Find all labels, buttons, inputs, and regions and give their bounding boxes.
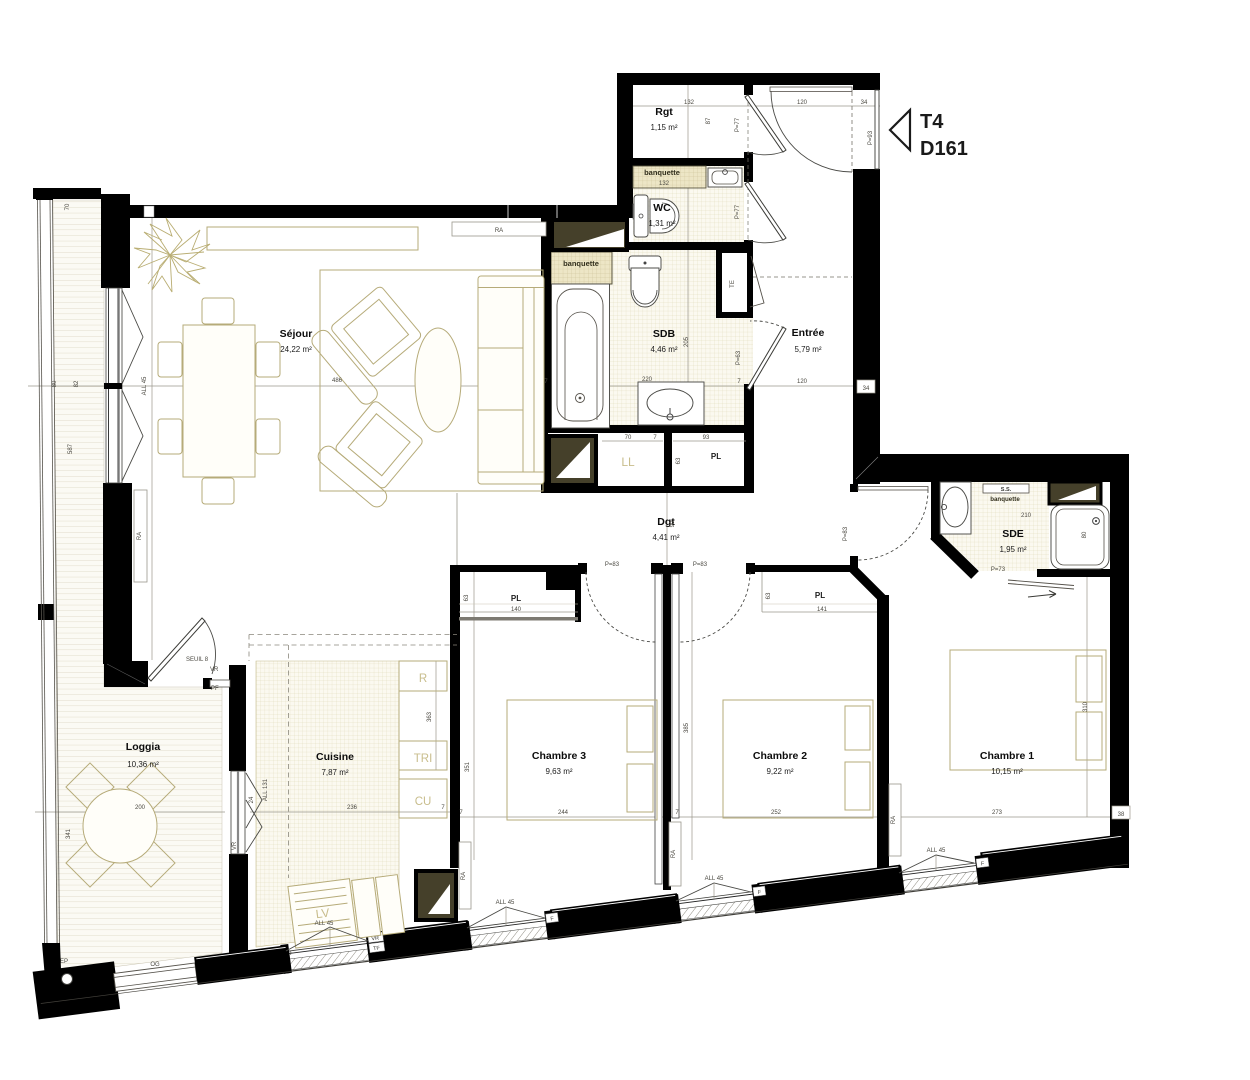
- svg-text:banquette: banquette: [644, 168, 680, 177]
- svg-text:252: 252: [771, 810, 782, 816]
- svg-text:P=73: P=73: [991, 567, 1006, 573]
- svg-text:ALL 45: ALL 45: [496, 900, 515, 906]
- svg-text:205: 205: [684, 336, 690, 347]
- svg-text:TRI: TRI: [414, 753, 433, 765]
- svg-text:132: 132: [684, 100, 695, 106]
- svg-text:ALL 45: ALL 45: [927, 848, 946, 854]
- svg-text:EP: EP: [60, 959, 68, 965]
- svg-text:310: 310: [1083, 701, 1089, 712]
- svg-text:63: 63: [464, 594, 470, 601]
- svg-text:486: 486: [332, 378, 343, 384]
- svg-text:PL: PL: [815, 591, 825, 600]
- svg-text:4,46 m²: 4,46 m²: [650, 345, 677, 354]
- svg-text:Chambre 3: Chambre 3: [532, 750, 586, 762]
- svg-text:SEUIL 8: SEUIL 8: [186, 657, 209, 663]
- svg-text:RA: RA: [891, 816, 897, 824]
- svg-text:120: 120: [797, 379, 808, 385]
- svg-text:132: 132: [659, 181, 670, 187]
- svg-text:82: 82: [74, 380, 80, 387]
- svg-text:24,22 m²: 24,22 m²: [280, 345, 312, 354]
- svg-text:WC: WC: [653, 202, 671, 214]
- svg-text:P=83: P=83: [843, 526, 849, 541]
- svg-text:VR: VR: [232, 841, 238, 850]
- svg-text:P=63: P=63: [736, 350, 742, 365]
- svg-text:34: 34: [863, 386, 870, 392]
- svg-text:363: 363: [427, 711, 433, 722]
- svg-text:1,31 m²: 1,31 m²: [648, 219, 675, 228]
- svg-text:341: 341: [66, 828, 72, 839]
- svg-text:F: F: [290, 951, 294, 957]
- svg-text:ALL 45: ALL 45: [315, 921, 334, 927]
- svg-text:P=77: P=77: [735, 117, 741, 132]
- svg-text:RA: RA: [461, 872, 467, 880]
- svg-text:PL: PL: [511, 594, 521, 603]
- svg-text:PF: PF: [211, 686, 219, 692]
- svg-text:90: 90: [670, 520, 676, 527]
- svg-text:P=83: P=83: [605, 562, 620, 568]
- svg-text:10,15 m²: 10,15 m²: [991, 767, 1023, 776]
- svg-text:SDE: SDE: [1002, 528, 1024, 540]
- svg-text:10,36 m²: 10,36 m²: [127, 760, 159, 769]
- svg-text:70: 70: [625, 435, 632, 441]
- svg-text:PL: PL: [711, 452, 721, 461]
- svg-text:273: 273: [992, 810, 1003, 816]
- svg-text:OG: OG: [150, 962, 160, 968]
- svg-text:244: 244: [558, 810, 569, 816]
- svg-text:Séjour: Séjour: [280, 328, 313, 340]
- svg-text:140: 140: [511, 607, 522, 613]
- svg-text:7,87 m²: 7,87 m²: [321, 768, 348, 777]
- svg-text:34: 34: [861, 100, 868, 106]
- svg-text:4,41 m²: 4,41 m²: [652, 533, 679, 542]
- svg-text:24: 24: [249, 796, 255, 803]
- svg-text:93: 93: [703, 435, 710, 441]
- svg-text:87: 87: [706, 117, 712, 124]
- svg-text:5,79 m²: 5,79 m²: [794, 345, 821, 354]
- svg-text:9,63 m²: 9,63 m²: [545, 767, 572, 776]
- svg-text:P=83: P=83: [693, 562, 708, 568]
- svg-text:P=93: P=93: [868, 130, 874, 145]
- svg-text:P=77: P=77: [735, 204, 741, 219]
- svg-text:1,95 m²: 1,95 m²: [999, 545, 1026, 554]
- svg-text:351: 351: [465, 761, 471, 772]
- svg-text:banquette: banquette: [990, 496, 1020, 503]
- svg-text:120: 120: [797, 100, 808, 106]
- svg-text:Rgt: Rgt: [655, 106, 673, 118]
- svg-text:Chambre 2: Chambre 2: [753, 750, 807, 762]
- svg-text:63: 63: [676, 457, 682, 464]
- svg-text:80: 80: [52, 380, 58, 387]
- svg-text:Loggia: Loggia: [126, 741, 161, 753]
- svg-text:200: 200: [135, 805, 146, 811]
- svg-text:RA: RA: [137, 532, 143, 540]
- svg-text:S.S.: S.S.: [1001, 487, 1012, 493]
- svg-text:ALL 45: ALL 45: [142, 376, 148, 395]
- svg-text:CU: CU: [415, 796, 432, 808]
- svg-text:D161: D161: [920, 138, 968, 160]
- svg-text:1,15 m²: 1,15 m²: [650, 123, 677, 132]
- svg-text:80: 80: [1082, 531, 1088, 538]
- svg-text:VR: VR: [210, 667, 219, 673]
- svg-text:T4: T4: [920, 111, 944, 133]
- svg-text:9,22 m²: 9,22 m²: [766, 767, 793, 776]
- svg-text:ALL 131: ALL 131: [263, 778, 269, 801]
- svg-text:Chambre 1: Chambre 1: [980, 750, 1034, 762]
- svg-text:70: 70: [65, 203, 71, 210]
- svg-text:63: 63: [766, 592, 772, 599]
- svg-text:SDB: SDB: [653, 328, 676, 340]
- svg-text:RA: RA: [495, 228, 503, 234]
- svg-text:220: 220: [642, 377, 653, 383]
- svg-text:ALL 45: ALL 45: [705, 876, 724, 882]
- svg-text:Cuisine: Cuisine: [316, 751, 354, 763]
- svg-text:Entrée: Entrée: [792, 327, 825, 339]
- svg-text:210: 210: [1021, 513, 1032, 519]
- svg-text:TE: TE: [730, 280, 736, 288]
- svg-text:banquette: banquette: [563, 259, 599, 268]
- svg-text:R: R: [419, 673, 427, 685]
- svg-text:385: 385: [684, 722, 690, 733]
- svg-text:141: 141: [817, 607, 828, 613]
- svg-text:236: 236: [347, 805, 358, 811]
- svg-text:38: 38: [1118, 812, 1125, 818]
- svg-text:LL: LL: [621, 455, 635, 469]
- svg-text:587: 587: [68, 443, 74, 454]
- svg-text:LV: LV: [315, 906, 330, 922]
- svg-text:RA: RA: [671, 850, 677, 858]
